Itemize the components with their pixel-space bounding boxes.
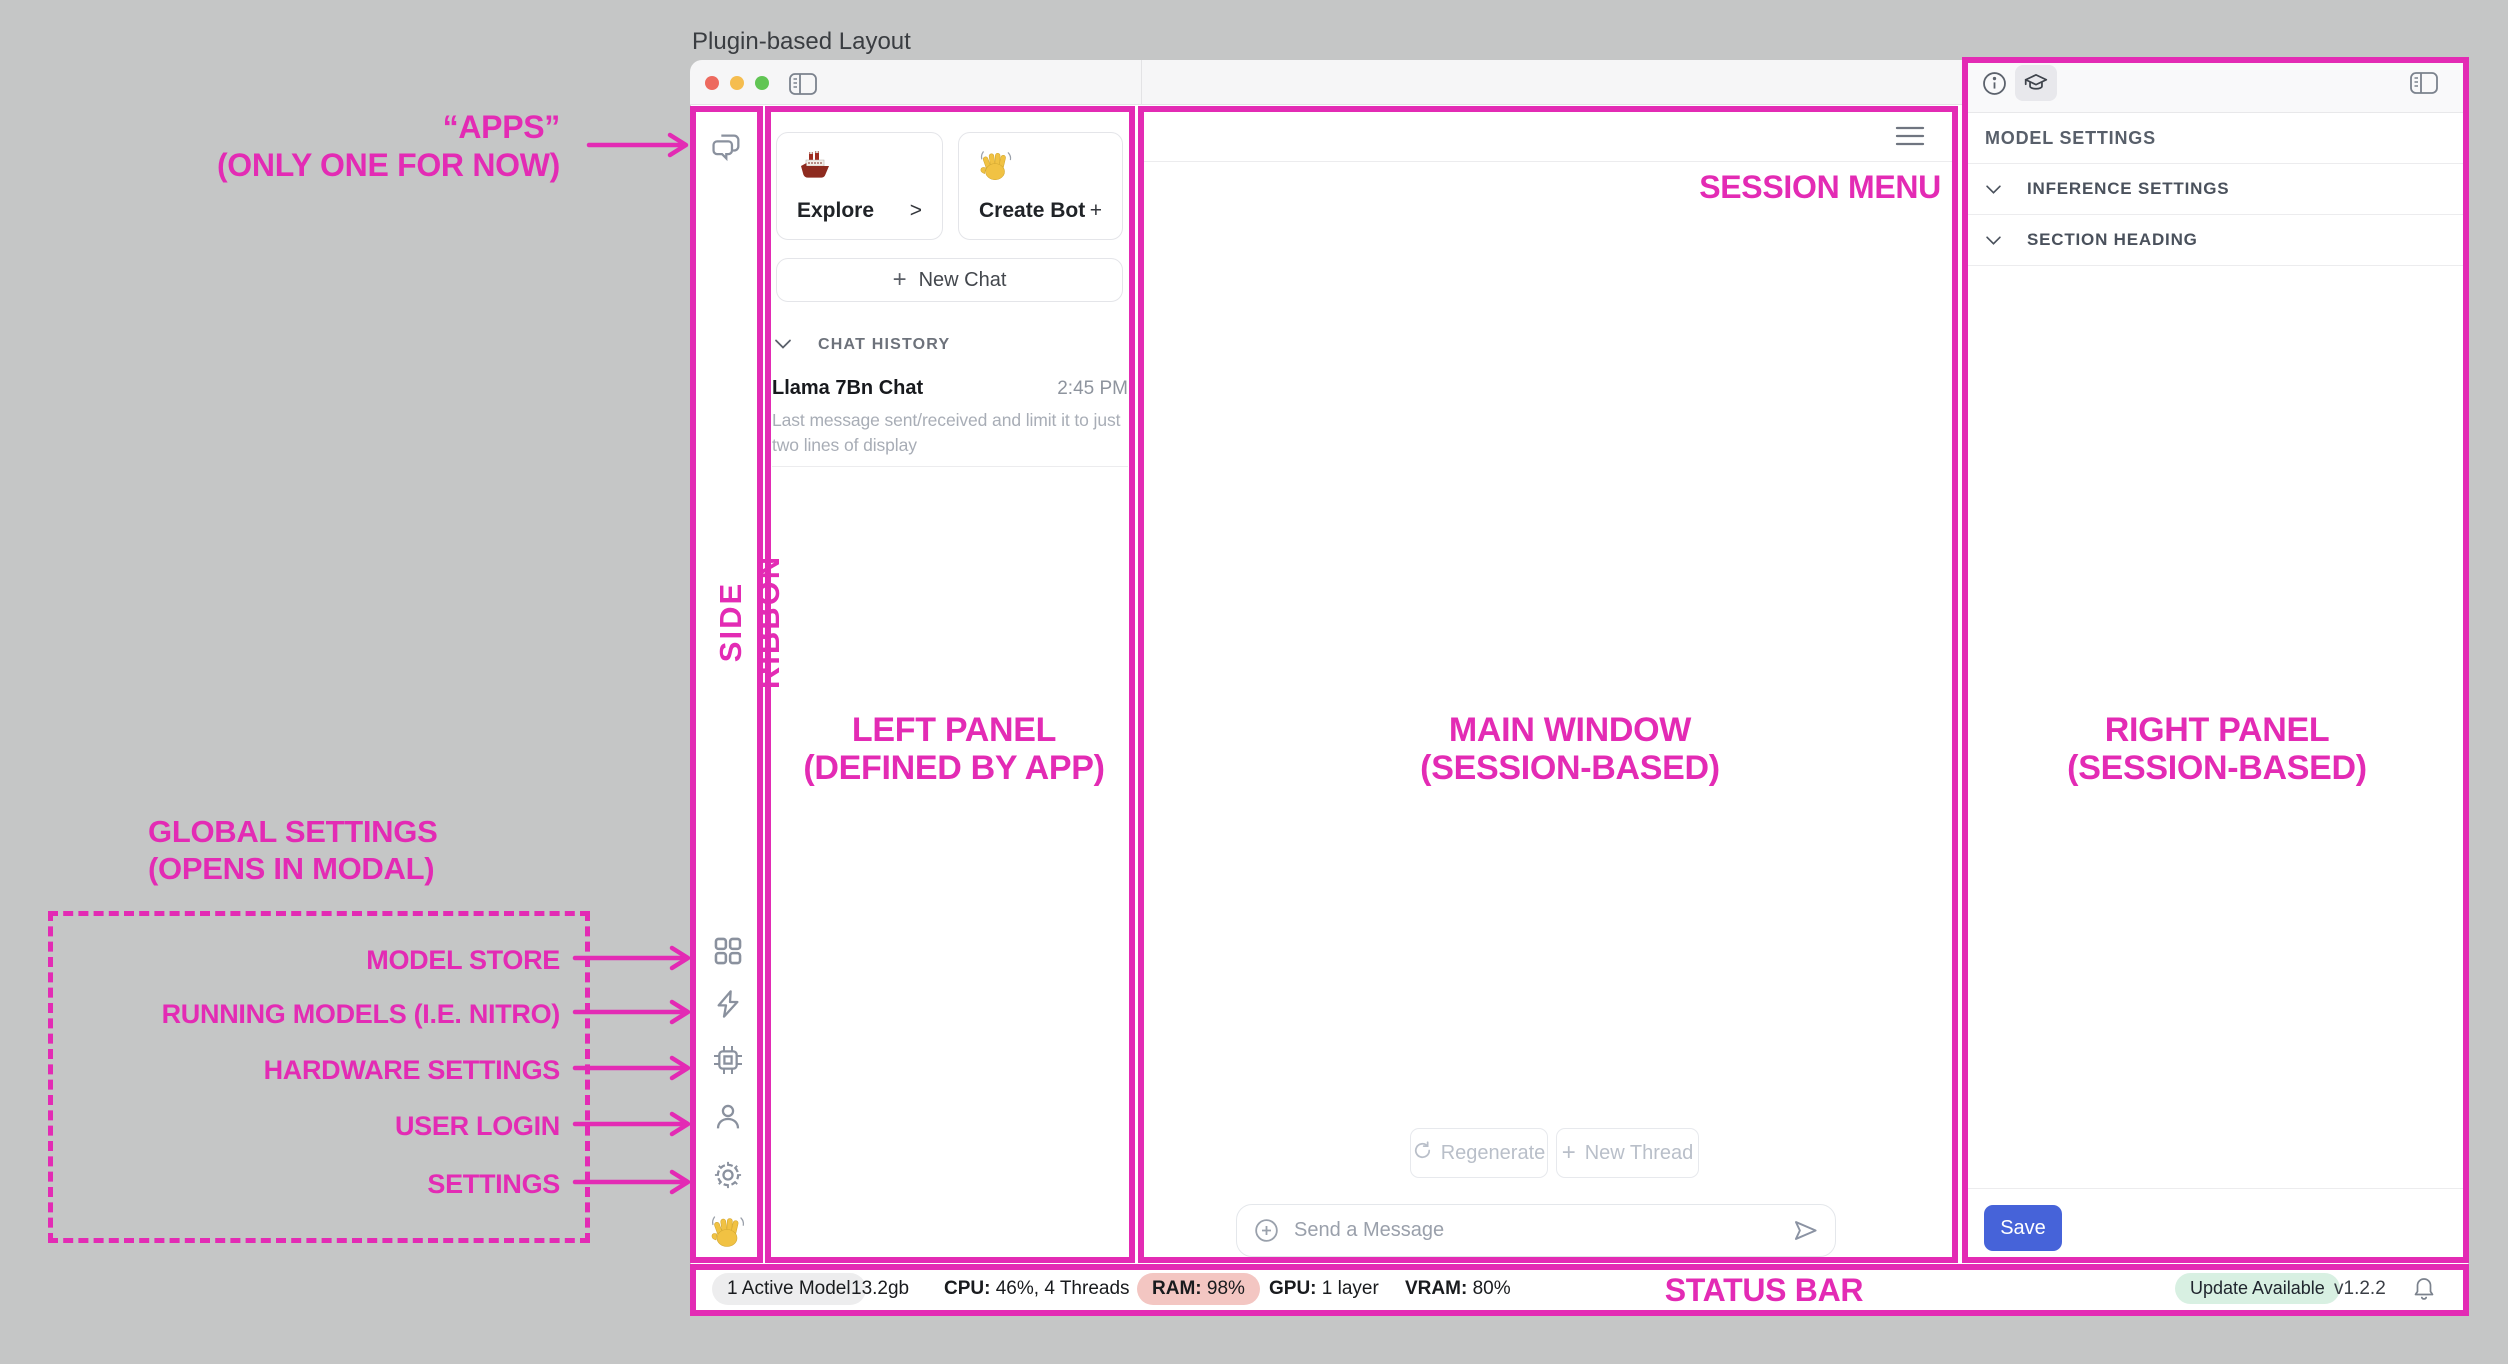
ship-emoji-icon [797, 149, 922, 190]
minimize-traffic-light[interactable] [730, 76, 744, 90]
user-login-icon[interactable] [712, 1101, 744, 1133]
chat-item-time: 2:45 PM [1057, 378, 1128, 400]
create-bot-card-label: Create Bot [979, 199, 1085, 223]
chat-item-divider [772, 466, 1128, 467]
left-sidebar-toggle-icon[interactable] [789, 73, 817, 100]
version-label: v1.2.2 [2334, 1278, 2386, 1300]
model-store-annotation: MODEL STORE [100, 941, 560, 979]
plus-icon: + [893, 266, 907, 294]
refresh-icon [1413, 1141, 1432, 1166]
cpu-value: 46%, 4 Threads [996, 1278, 1130, 1299]
wave-emoji-icon [979, 149, 1102, 188]
notifications-bell-icon[interactable] [2412, 1275, 2436, 1307]
running-models-annotation: RUNNING MODELS (I.E. NITRO) [100, 995, 560, 1033]
settings-gear-icon[interactable] [712, 1159, 744, 1191]
plus-icon: + [1562, 1139, 1576, 1167]
right-panel-header-row: MODEL SETTINGS [1968, 113, 2463, 164]
chat-history-header: CHAT HISTORY [818, 336, 950, 354]
info-tab-icon[interactable] [1981, 70, 2008, 102]
create-bot-card-plus: + [1090, 199, 1102, 223]
explore-card-label: Explore [797, 199, 874, 223]
settings-annotation: SETTINGS [100, 1165, 560, 1203]
titlebar-divider [1141, 60, 1142, 105]
gpu-label: GPU: [1269, 1278, 1317, 1299]
left-panel-annotation: LEFT PANEL (DEFINED BY APP) [734, 711, 1174, 787]
main-window-annotation: MAIN WINDOW (SESSION-BASED) [1350, 711, 1790, 787]
cpu-label: CPU: [944, 1278, 990, 1299]
chat-list-item[interactable]: Llama 7Bn Chat 2:45 PM [772, 377, 1128, 400]
update-available-badge[interactable]: Update Available [2175, 1273, 2340, 1304]
regenerate-button[interactable]: Regenerate [1410, 1128, 1548, 1178]
user-login-arrow [572, 1110, 692, 1138]
canvas: Plugin-based Layout [0, 0, 2508, 1364]
chat-item-title: Llama 7Bn Chat [772, 377, 923, 400]
model-store-icon[interactable] [711, 934, 745, 968]
regenerate-label: Regenerate [1441, 1142, 1546, 1165]
right-panel-footer-divider [1968, 1188, 2463, 1189]
user-login-annotation: USER LOGIN [100, 1107, 560, 1145]
explore-card[interactable]: Explore > [776, 132, 943, 240]
hardware-settings-arrow [572, 1054, 692, 1082]
chat-item-preview: Last message sent/received and limit it … [772, 408, 1136, 458]
message-input[interactable] [1294, 1219, 1778, 1242]
side-ribbon-annotation: SIDE RIBBON [712, 512, 750, 732]
ram-label: RAM: [1152, 1278, 1202, 1299]
right-panel-annotation: RIGHT PANEL (SESSION-BASED) [1997, 711, 2437, 787]
graduation-cap-icon [2023, 70, 2049, 96]
chevron-down-icon [1985, 235, 2002, 246]
active-models-badge: 1 Active Model [712, 1273, 866, 1305]
apps-annotation: “APPS” (ONLY ONE FOR NOW) [140, 108, 560, 184]
main-header-divider [1144, 161, 1952, 162]
chevron-down-icon [1985, 184, 2002, 195]
create-bot-card[interactable]: Create Bot + [958, 132, 1123, 240]
ram-status-badge: RAM: 98% [1137, 1273, 1260, 1305]
ram-value: 98% [1207, 1278, 1245, 1299]
running-models-arrow [572, 998, 692, 1026]
hardware-settings-icon[interactable] [712, 1044, 744, 1076]
settings-arrow [572, 1168, 692, 1196]
model-settings-header: MODEL SETTINGS [1985, 128, 2156, 149]
memory-usage: 13.2gb [851, 1278, 909, 1300]
running-models-icon[interactable] [712, 987, 744, 1021]
model-store-arrow [572, 944, 692, 972]
cpu-status: CPU: 46%, 4 Threads [944, 1278, 1130, 1300]
model-settings-tab[interactable] [2015, 65, 2057, 101]
chat-app-icon[interactable] [710, 130, 744, 164]
hardware-settings-annotation: HARDWARE SETTINGS [100, 1051, 560, 1089]
vram-label: VRAM: [1405, 1278, 1467, 1299]
wave-app-logo-icon[interactable] [710, 1214, 746, 1255]
send-icon[interactable] [1792, 1217, 1819, 1244]
global-settings-annotation: GLOBAL SETTINGS (OPENS IN MODAL) [148, 813, 648, 887]
new-chat-button[interactable]: + New Chat [776, 258, 1123, 302]
status-bar-annotation: STATUS BAR [1614, 1271, 1914, 1309]
chat-history-chevron-icon[interactable] [774, 337, 792, 355]
new-chat-label: New Chat [919, 269, 1007, 292]
section-heading-row[interactable]: SECTION HEADING [1968, 215, 2463, 266]
page-title: Plugin-based Layout [692, 28, 911, 56]
new-thread-label: New Thread [1585, 1142, 1694, 1165]
inference-settings-row[interactable]: INFERENCE SETTINGS [1968, 164, 2463, 215]
maximize-traffic-light[interactable] [755, 76, 769, 90]
explore-card-chevron: > [910, 199, 922, 223]
inference-settings-label: INFERENCE SETTINGS [2027, 179, 2229, 199]
close-traffic-light[interactable] [705, 76, 719, 90]
message-composer[interactable] [1236, 1204, 1836, 1257]
new-thread-button[interactable]: + New Thread [1556, 1128, 1699, 1178]
session-menu-annotation: SESSION MENU [1611, 168, 1941, 206]
gpu-status: GPU: 1 layer [1269, 1278, 1379, 1300]
vram-value: 80% [1473, 1278, 1511, 1299]
vram-status: VRAM: 80% [1405, 1278, 1511, 1300]
right-sidebar-toggle-icon[interactable] [2410, 72, 2438, 99]
save-button[interactable]: Save [1984, 1205, 2062, 1251]
section-heading-label: SECTION HEADING [2027, 230, 2198, 250]
apps-arrow [586, 131, 690, 159]
attach-plus-circle-icon[interactable] [1253, 1217, 1280, 1244]
gpu-value: 1 layer [1322, 1278, 1379, 1299]
session-menu-icon[interactable] [1896, 126, 1924, 151]
